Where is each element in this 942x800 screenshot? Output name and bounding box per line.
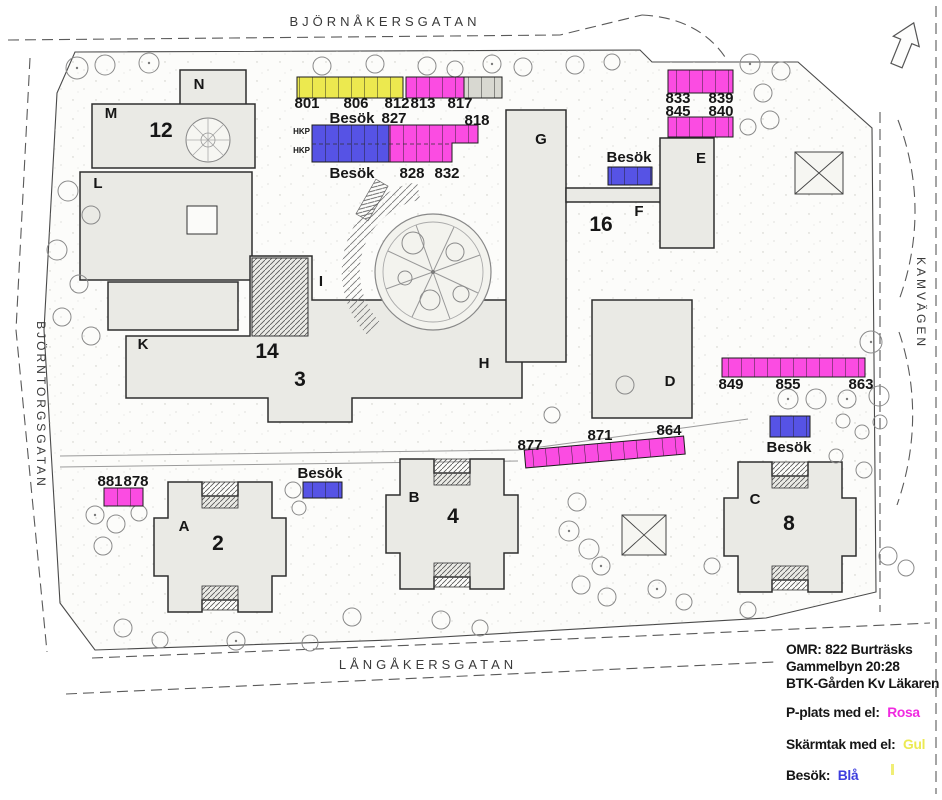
stall-label-881: 881 <box>97 473 122 490</box>
hkp-label-2: HKP <box>293 146 311 155</box>
besok-label-sw: Besök <box>297 465 343 482</box>
stall-label-849: 849 <box>718 376 743 393</box>
building-label-D: D <box>665 373 676 390</box>
building-D <box>592 300 692 418</box>
building-label-E: E <box>696 150 706 167</box>
stall-label-832: 832 <box>434 165 459 182</box>
besok-label-north: Besök <box>329 110 375 127</box>
building-label-A: A <box>179 518 190 535</box>
besok-label-east: Besök <box>766 439 812 456</box>
building-label-G: G <box>535 131 547 148</box>
stall-label-871: 871 <box>587 427 612 444</box>
legend: OMR: 822 Burträsks Gammelbyn 20:28 BTK-G… <box>786 642 939 783</box>
stall-label-878: 878 <box>123 473 148 490</box>
building-label-C: C <box>750 491 761 508</box>
building-label-3: 3 <box>294 368 306 391</box>
building-label-2: 2 <box>212 532 224 555</box>
building-label-12: 12 <box>149 119 172 142</box>
building-label-H: H <box>479 355 490 372</box>
stall-label-840: 840 <box>708 103 733 120</box>
building-label-M: M <box>105 105 118 122</box>
stall-label-813: 813 <box>410 95 435 112</box>
stall-label-801: 801 <box>294 95 319 112</box>
stall-label-855: 855 <box>775 376 800 393</box>
stall-label-845: 845 <box>665 103 690 120</box>
besok-label-row2: Besök <box>329 165 375 182</box>
hkp-label-1: HKP <box>293 127 311 136</box>
shed-east <box>795 152 843 194</box>
building-L <box>80 172 252 280</box>
site-plan: 801 806 812 813 817 Besök 827 818 HKP HK… <box>0 0 942 800</box>
building-label-B: B <box>409 489 420 506</box>
legend-area-line3: BTK-Gården Kv Läkaren <box>786 676 939 691</box>
legend-item-skarmtak: Skärmtak med el: Gul <box>786 737 925 752</box>
stall-label-818: 818 <box>464 112 489 129</box>
stray-mark <box>891 764 894 775</box>
street-label-top: BJÖRNÅKERSGATAN <box>290 14 481 29</box>
legend-area-line2: Gammelbyn 20:28 <box>786 659 900 674</box>
stall-label-827: 827 <box>381 110 406 127</box>
besok-label-ne: Besök <box>606 149 652 166</box>
building-label-4: 4 <box>447 505 459 528</box>
stall-label-817: 817 <box>447 95 472 112</box>
stall-label-863: 863 <box>848 376 873 393</box>
building-label-8: 8 <box>783 512 795 535</box>
building-label-I: I <box>319 273 323 290</box>
courtyard-12 <box>186 118 230 162</box>
building-label-K: K <box>138 336 149 353</box>
building-label-N: N <box>194 76 205 93</box>
street-label-left: BJÖRNTORGSGATAN <box>34 321 48 489</box>
site-plan-svg: 801 806 812 813 817 Besök 827 818 HKP HK… <box>0 0 942 800</box>
building-K-wing <box>108 282 238 330</box>
stall-label-864: 864 <box>656 422 682 439</box>
street-label-right: KAMVÄGEN <box>914 257 928 349</box>
building-label-16: 16 <box>589 213 612 236</box>
building-label-L: L <box>93 175 102 192</box>
legend-item-besok: Besök: Blå <box>786 768 859 783</box>
shed-south <box>622 515 666 555</box>
street-label-bottom: LÅNGÅKERSGATAN <box>339 657 517 672</box>
stall-label-828: 828 <box>399 165 424 182</box>
building-label-14: 14 <box>255 340 279 363</box>
legend-item-pplats: P-plats med el: Rosa <box>786 705 920 720</box>
building-label-F: F <box>634 203 643 220</box>
stall-label-877: 877 <box>517 437 542 454</box>
north-arrow-icon <box>884 18 927 71</box>
legend-area-line1: OMR: 822 Burträsks <box>786 642 913 657</box>
